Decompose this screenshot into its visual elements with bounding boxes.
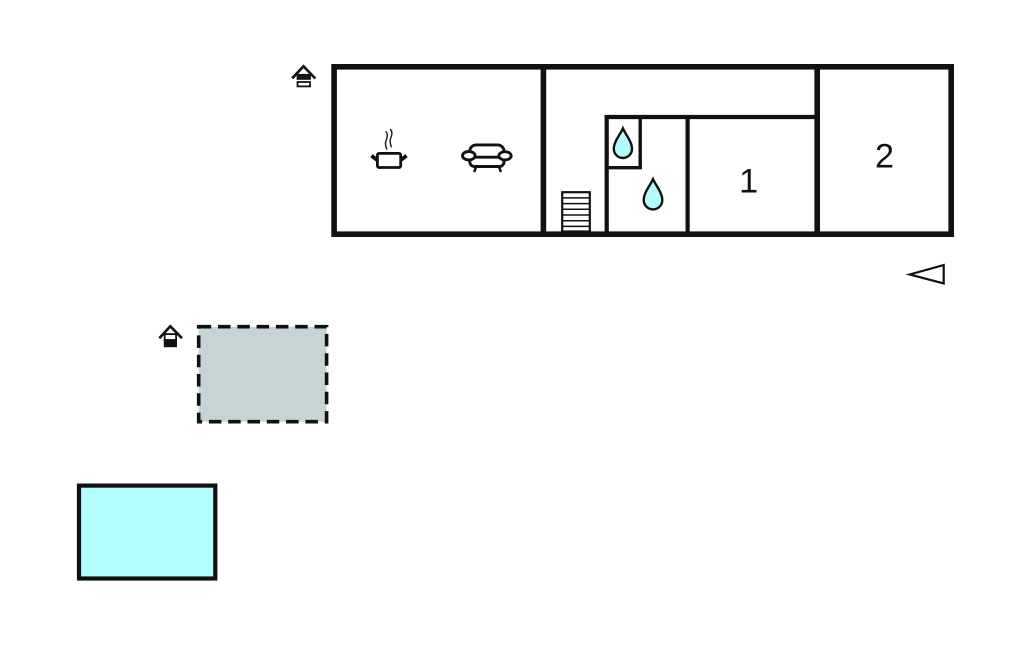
svg-text:2: 2 [875, 137, 894, 175]
svg-text:1: 1 [739, 162, 758, 200]
